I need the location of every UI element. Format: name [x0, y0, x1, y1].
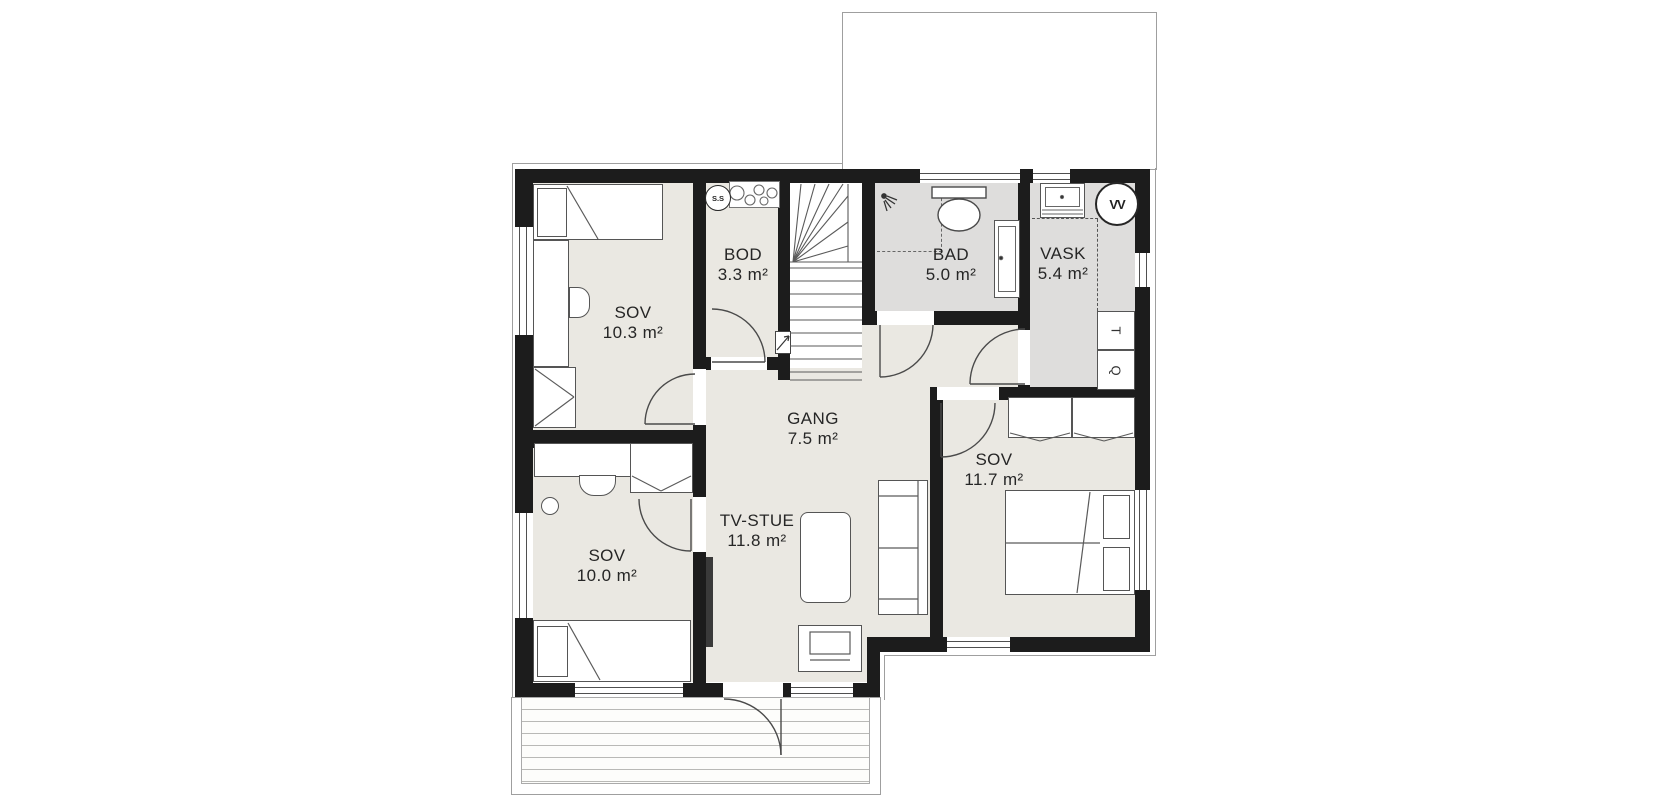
distribution-cabinet-circle: S.S	[705, 185, 731, 211]
room-area: 11.7 m²	[934, 470, 1054, 490]
room-label-tvstue: TV-STUE 11.8 m²	[697, 511, 817, 551]
room-area: 11.8 m²	[697, 531, 817, 551]
room-label-sov1: SOV 10.3 m²	[573, 303, 693, 343]
room-name: SOV	[547, 546, 667, 566]
distribution-cabinet-label: S.S	[712, 194, 724, 203]
water-heater-label: VV	[1109, 197, 1124, 212]
door-sov3	[639, 499, 691, 551]
floor-plan: T Q VV S.S	[0, 0, 1670, 800]
room-name: GANG	[763, 409, 863, 429]
water-heater-circle: VV	[1095, 182, 1139, 226]
door-bad	[880, 325, 933, 377]
door-sov2	[941, 403, 995, 457]
shower-head-icon	[882, 194, 897, 211]
room-area: 3.3 m²	[703, 265, 783, 285]
room-area: 10.3 m²	[573, 323, 693, 343]
door-vask	[970, 329, 1025, 384]
room-label-bad: BAD 5.0 m²	[911, 245, 991, 285]
room-area: 10.0 m²	[547, 566, 667, 586]
room-name: VASK	[1023, 244, 1103, 264]
sofa-lines	[879, 481, 918, 614]
room-name: TV-STUE	[697, 511, 817, 531]
room-name: SOV	[934, 450, 1054, 470]
room-label-bod: BOD 3.3 m²	[703, 245, 783, 285]
toilet-icon	[932, 187, 986, 231]
room-name: BAD	[911, 245, 991, 265]
plan-linework	[0, 0, 1670, 800]
room-label-sov3: SOV 10.0 m²	[547, 546, 667, 586]
room-area: 5.4 m²	[1023, 264, 1103, 284]
room-label-gang: GANG 7.5 m²	[763, 409, 863, 449]
room-label-vask: VASK 5.4 m²	[1023, 244, 1103, 284]
electrical-arrow-icon	[777, 336, 789, 350]
staircase	[790, 184, 862, 380]
armchair-lines	[810, 632, 850, 660]
room-label-sov2: SOV 11.7 m²	[934, 450, 1054, 490]
door-terrace	[724, 699, 781, 755]
door-sov1	[645, 374, 695, 424]
room-name: SOV	[573, 303, 693, 323]
door-bod	[712, 309, 765, 362]
room-name: BOD	[703, 245, 783, 265]
pipe-manifold-icon	[730, 185, 777, 205]
room-area: 7.5 m²	[763, 429, 863, 449]
room-area: 5.0 m²	[911, 265, 991, 285]
